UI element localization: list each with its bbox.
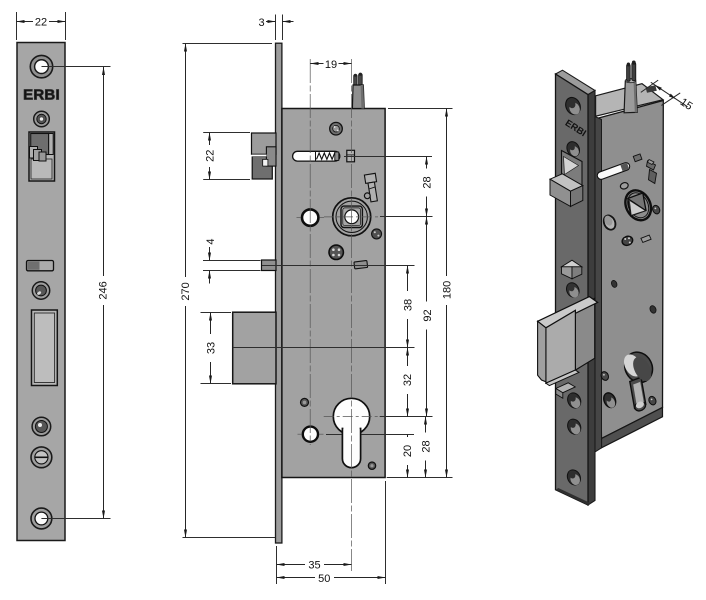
svg-text:22: 22	[35, 17, 47, 29]
svg-text:20: 20	[402, 445, 414, 457]
svg-text:38: 38	[402, 299, 414, 311]
svg-text:246: 246	[98, 281, 110, 299]
svg-text:4: 4	[205, 238, 217, 244]
svg-text:28: 28	[422, 176, 434, 188]
svg-text:3: 3	[258, 17, 264, 29]
svg-text:270: 270	[180, 282, 192, 300]
svg-text:33: 33	[205, 342, 217, 354]
svg-text:92: 92	[422, 309, 434, 321]
svg-text:35: 35	[308, 559, 320, 571]
svg-text:ERBI: ERBI	[23, 87, 60, 104]
svg-text:32: 32	[402, 374, 414, 386]
svg-text:15: 15	[678, 96, 695, 113]
svg-text:180: 180	[441, 281, 453, 299]
svg-text:50: 50	[318, 573, 330, 585]
svg-text:28: 28	[420, 440, 432, 452]
svg-text:22: 22	[205, 150, 217, 162]
svg-text:19: 19	[325, 59, 337, 71]
